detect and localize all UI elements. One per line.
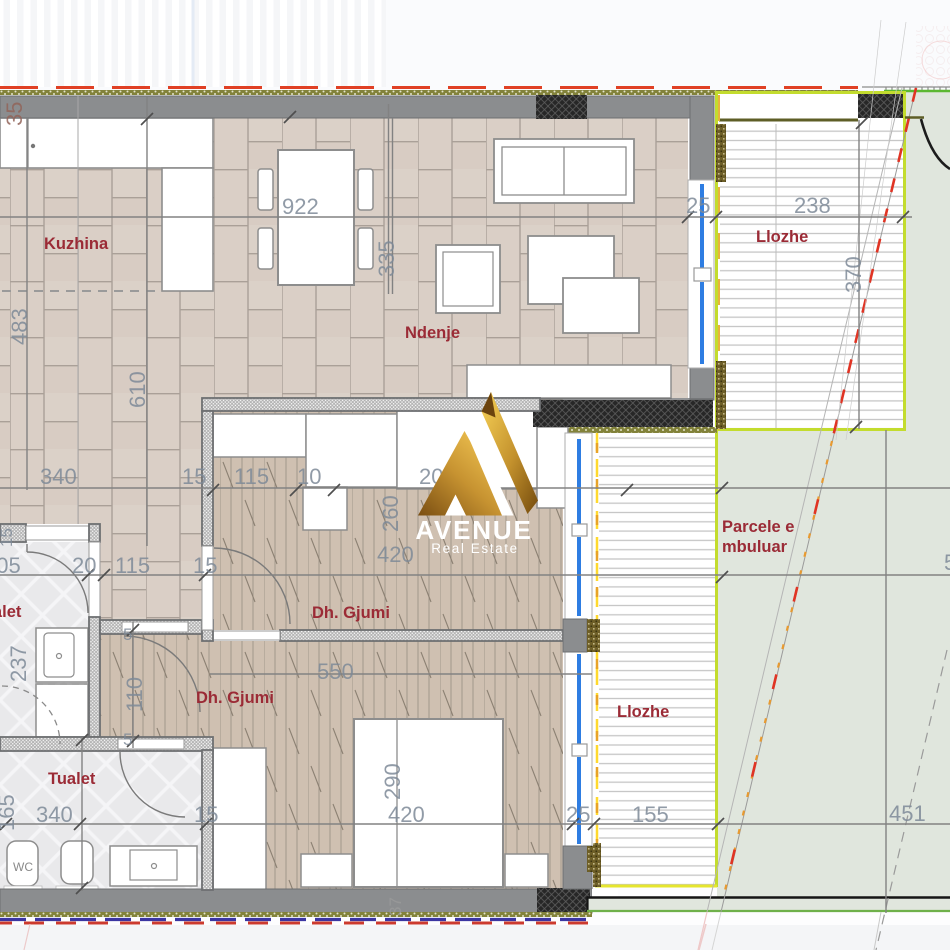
svg-text:55: 55 [944, 550, 950, 575]
svg-text:Real Estate: Real Estate [431, 541, 518, 556]
svg-text:451: 451 [889, 801, 926, 826]
svg-text:Ndenje: Ndenje [405, 324, 460, 342]
svg-text:Tualet: Tualet [0, 603, 22, 621]
svg-text:483: 483 [7, 308, 32, 345]
svg-text:10: 10 [297, 464, 321, 489]
svg-text:610: 610 [125, 371, 150, 408]
svg-text:5: 5 [123, 730, 132, 749]
svg-text:105: 105 [0, 553, 21, 578]
svg-text:550: 550 [317, 659, 354, 684]
svg-text:WC: WC [13, 860, 33, 874]
svg-text:290: 290 [380, 763, 405, 800]
svg-text:420: 420 [388, 802, 425, 827]
svg-text:115: 115 [234, 464, 269, 489]
svg-text:Parcele e: Parcele e [722, 518, 794, 536]
svg-text:340: 340 [36, 802, 73, 827]
svg-text:20: 20 [72, 553, 96, 578]
svg-text:25: 25 [566, 802, 590, 827]
svg-text:5: 5 [123, 625, 132, 644]
svg-text:238: 238 [794, 193, 831, 218]
svg-text:15: 15 [194, 802, 218, 827]
svg-text:370: 370 [841, 256, 866, 293]
svg-text:335: 335 [374, 240, 399, 277]
svg-text:110: 110 [122, 677, 147, 712]
svg-text:15: 15 [182, 464, 206, 489]
svg-text:Dh. Gjumi: Dh. Gjumi [312, 604, 390, 622]
svg-text:115: 115 [115, 553, 150, 578]
svg-text:237: 237 [6, 645, 31, 682]
svg-text:Dh. Gjumi: Dh. Gjumi [196, 689, 274, 707]
svg-text:15: 15 [193, 553, 217, 578]
svg-text:Llozhe: Llozhe [756, 228, 808, 246]
svg-text:Llozhe: Llozhe [617, 703, 669, 721]
svg-text:15: 15 [0, 528, 16, 547]
svg-text:mbuluar: mbuluar [722, 538, 788, 556]
svg-text:25: 25 [686, 193, 710, 218]
svg-text:37: 37 [386, 897, 405, 916]
svg-text:340: 340 [40, 464, 77, 489]
svg-text:35: 35 [2, 102, 27, 126]
svg-text:922: 922 [282, 194, 319, 219]
svg-text:165: 165 [0, 794, 19, 831]
svg-text:155: 155 [632, 802, 669, 827]
svg-text:Tualet: Tualet [48, 770, 96, 788]
svg-text:420: 420 [377, 542, 414, 567]
svg-text:Kuzhina: Kuzhina [44, 235, 109, 253]
svg-text:260: 260 [378, 495, 403, 532]
